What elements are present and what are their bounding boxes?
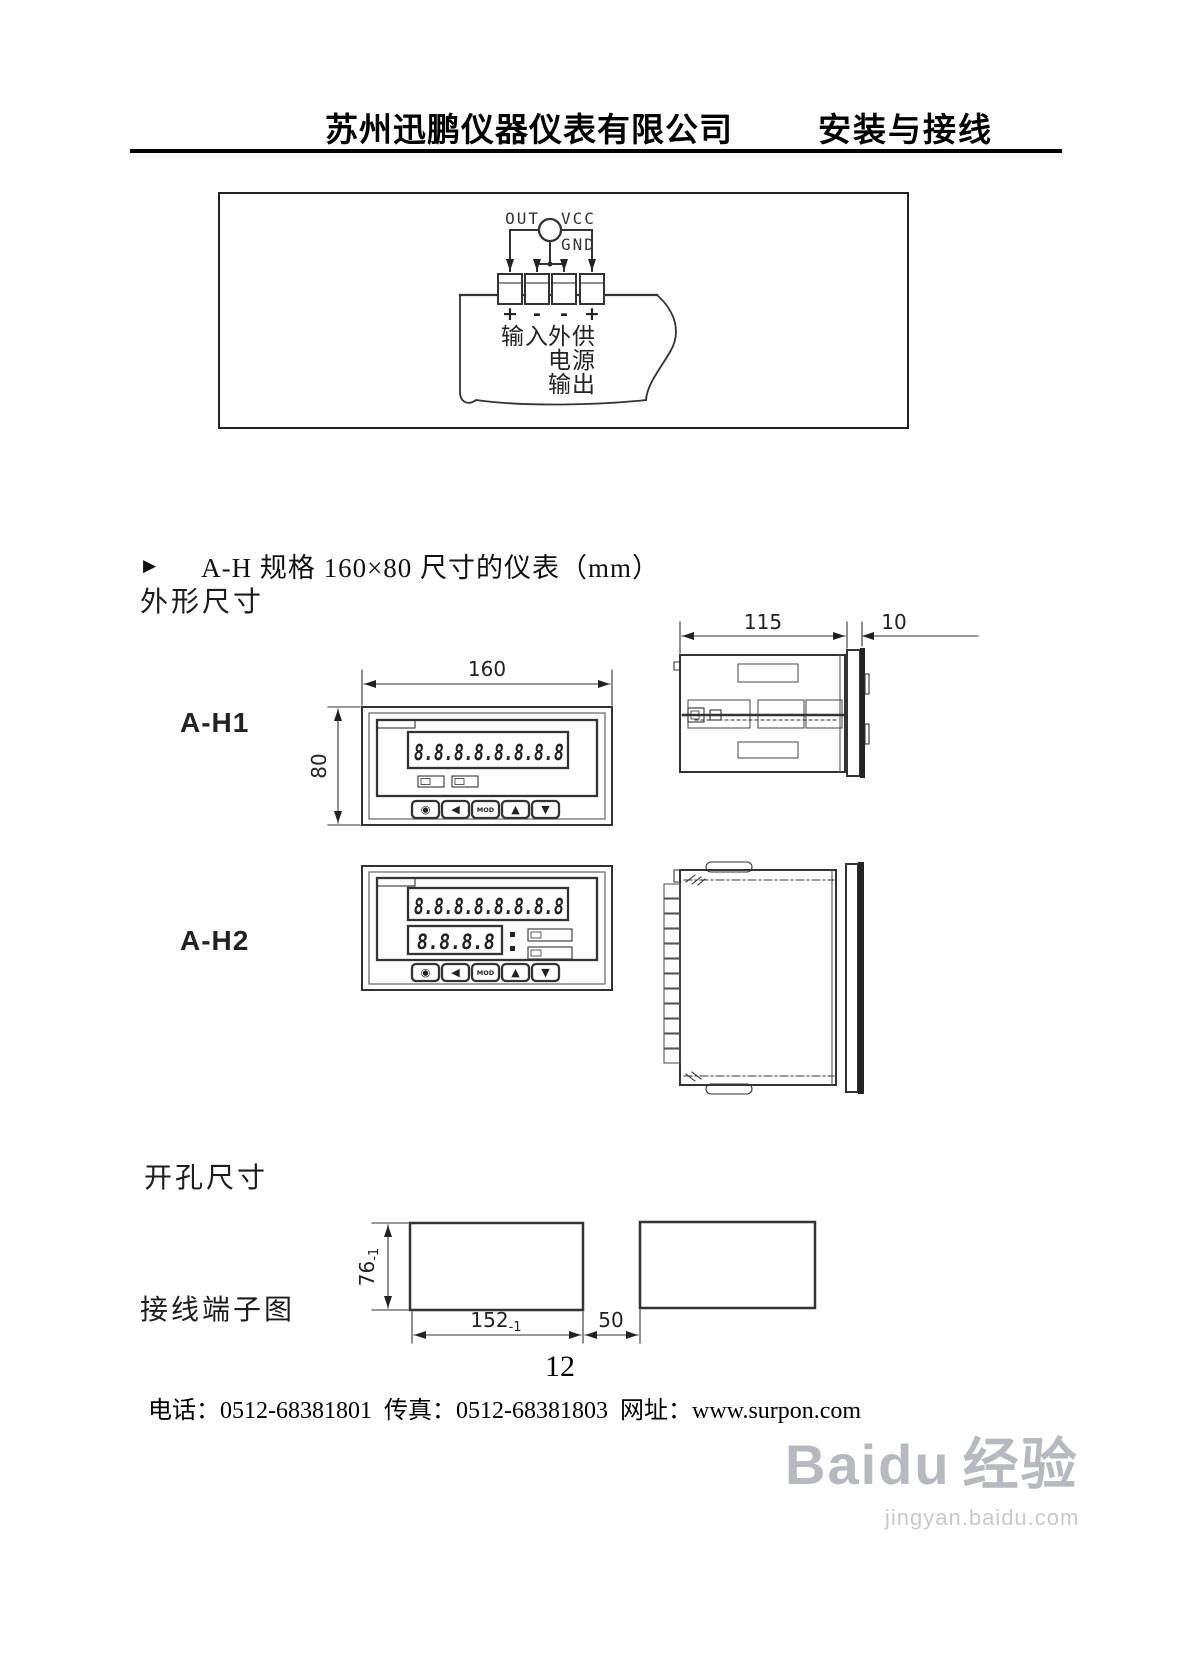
footer-contact-line: 电话：0512-68381801传真：0512-68381803网址：www.s…	[148, 1390, 861, 1425]
watermark-url: jingyan.baidu.com	[885, 1505, 1079, 1531]
page-number: 12	[495, 1350, 625, 1384]
polarity-1: +	[502, 303, 518, 325]
spec-bullet-text: A-H 规格 160×80 尺寸的仪表（mm）	[201, 546, 660, 585]
model-label-ah1: A-H1	[180, 707, 249, 738]
ah2-secondary-digits: 8.8.8.8	[415, 929, 496, 954]
ah2-display-digits: 8.8.8.8.8.8.8.8	[412, 895, 565, 920]
label-input: 输入	[501, 323, 549, 349]
header-section-title: 安装与接线	[818, 103, 993, 151]
watermark-brand: Baidu	[785, 1432, 951, 1497]
label-supply-row3: 输出	[548, 371, 596, 397]
sensor-symbol	[539, 219, 561, 241]
mod-button-label: MOD	[477, 969, 495, 977]
power-button-icon: ◉	[421, 966, 431, 979]
header-rule	[130, 149, 1062, 153]
web-label: 网址：	[620, 1398, 692, 1424]
model-label-ah2: A-H2	[180, 925, 249, 956]
up-arrow-button-icon: ▲	[511, 966, 520, 979]
dim-cutout-width: 152-1	[470, 1308, 521, 1335]
phone-label: 电话：	[148, 1398, 220, 1424]
dim-front-height: 80	[307, 753, 331, 778]
label-out: OUT	[505, 209, 540, 228]
up-arrow-button-icon: ▲	[511, 803, 520, 816]
ah1-front-view: 160 80 8.8.8.8.8.8.8.8 ◉	[307, 657, 612, 825]
ah2-button-row: ◉ ◀ MOD ▲ ▼	[412, 964, 559, 981]
phone-number: 0512-68381801	[220, 1398, 372, 1424]
top-view	[664, 862, 864, 1094]
cutout-section-heading: 开孔尺寸	[144, 1156, 268, 1196]
cutout-width-tolerance: -1	[509, 1320, 522, 1335]
fax-number: 0512-68381803	[456, 1398, 608, 1424]
cutout-width-value: 152	[470, 1308, 508, 1332]
baidu-jingyan-watermark: Baidu 经验 jingyan.baidu.com	[785, 1420, 1079, 1531]
label-vcc: VCC	[561, 209, 596, 228]
terminal-section-heading: 接线端子图	[140, 1288, 295, 1328]
left-arrow-button-icon: ◀	[451, 803, 460, 816]
label-gnd: GND	[561, 235, 596, 254]
power-button-icon: ◉	[421, 803, 431, 816]
cutout-drawing: 76-1 152-1 50	[330, 1215, 850, 1350]
mod-button-label: MOD	[477, 806, 495, 814]
left-arrow-button-icon: ◀	[451, 966, 460, 979]
header-company-title: 苏州迅鹏仪器仪表有限公司	[325, 103, 733, 151]
polarity-2: -	[533, 303, 541, 325]
watermark-suffix: 经验	[963, 1420, 1079, 1501]
dim-cutout-gap: 50	[598, 1308, 623, 1332]
outline-drawing: A-H1 A-H2 160 80 8.8.8.8.8.8.8.8	[150, 612, 1070, 1117]
label-supply-row2: 电源	[548, 347, 596, 373]
down-arrow-button-icon: ▼	[541, 966, 550, 979]
cutout-height-tolerance: -1	[367, 1248, 382, 1261]
dim-side-depth: 115	[744, 612, 782, 634]
ah1-button-row: ◉ ◀ MOD ▲ ▼	[412, 801, 559, 818]
dim-front-width: 160	[468, 657, 506, 681]
down-arrow-button-icon: ▼	[541, 803, 550, 816]
ah1-display-digits: 8.8.8.8.8.8.8.8	[412, 741, 565, 766]
sensor-wiring-diagram: OUT VCC GND	[218, 192, 909, 429]
terminal-blocks	[498, 274, 604, 304]
document-page: 苏州迅鹏仪器仪表有限公司 安装与接线 OUT VCC GN	[0, 0, 1190, 1678]
dim-cutout-height: 76-1	[355, 1248, 382, 1286]
label-supply-row1: 外供	[548, 323, 596, 349]
side-view: 115 10	[674, 612, 978, 778]
bullet-icon: ▶	[143, 556, 156, 576]
fax-label: 传真：	[384, 1398, 456, 1424]
dim-side-bezel: 10	[881, 612, 906, 634]
cutout-height-value: 76	[355, 1261, 379, 1286]
ah2-front-view: 8.8.8.8.8.8.8.8 8.8.8.8 ◉ ◀ MOD ▲	[362, 866, 612, 990]
polarity-4: +	[584, 303, 600, 325]
polarity-3: -	[560, 303, 568, 325]
sensor-wiring-svg: OUT VCC GND	[220, 194, 907, 427]
rear-terminal-strip	[664, 884, 680, 1063]
